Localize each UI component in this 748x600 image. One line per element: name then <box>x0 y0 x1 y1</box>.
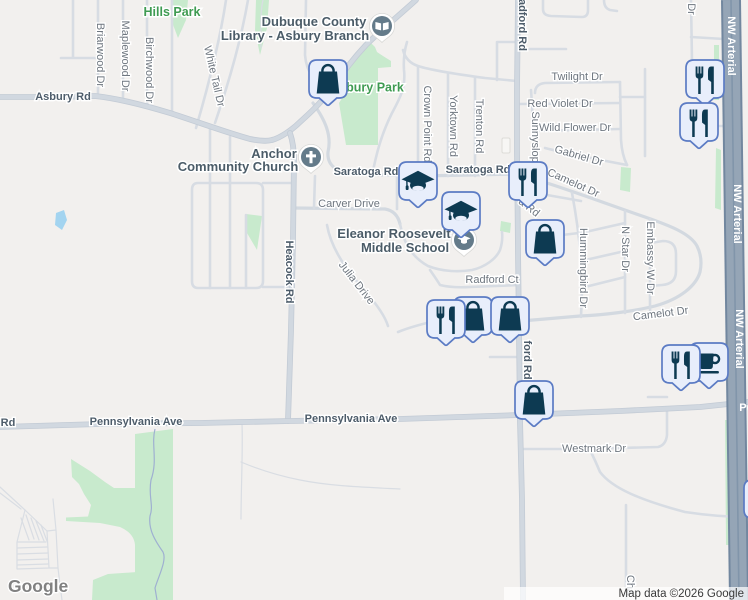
svg-text:Hills Park: Hills Park <box>144 5 201 19</box>
svg-text:Saratoga Rd: Saratoga Rd <box>334 166 399 178</box>
svg-text:Maplewood Dr: Maplewood Dr <box>119 21 131 92</box>
svg-text:NW Arterial: NW Arterial <box>731 184 743 244</box>
svg-text:Trenton Rd: Trenton Rd <box>473 99 485 154</box>
svg-text:Dr: Dr <box>685 3 697 15</box>
svg-text:Sunnyslop: Sunnyslop <box>529 111 541 162</box>
svg-text:NW Arterial: NW Arterial <box>733 309 745 369</box>
svg-text:Birchwood Dr: Birchwood Dr <box>143 37 155 103</box>
svg-text:Red Violet Dr: Red Violet Dr <box>527 98 593 110</box>
svg-text:Library - Asbury Branch: Library - Asbury Branch <box>221 28 369 43</box>
svg-text:N Star Dr: N Star Dr <box>619 226 631 272</box>
svg-text:Westmark Dr: Westmark Dr <box>562 443 626 455</box>
svg-text:Radford Rd: Radford Rd <box>516 0 528 51</box>
svg-text:Dubuque County: Dubuque County <box>262 14 367 29</box>
svg-text:Radford Ct: Radford Ct <box>465 274 518 286</box>
svg-text:Heacock Rd: Heacock Rd <box>283 241 295 304</box>
svg-text:Crown Point Rd: Crown Point Rd <box>421 85 433 162</box>
svg-text:Map data ©2026 Google: Map data ©2026 Google <box>619 588 744 600</box>
svg-text:Rd: Rd <box>1 417 16 429</box>
svg-text:Middle School: Middle School <box>361 240 449 255</box>
svg-text:Hummingbird Dr: Hummingbird Dr <box>577 228 589 308</box>
svg-text:Eleanor Roosevelt: Eleanor Roosevelt <box>337 226 451 241</box>
svg-text:Briarwood Dr: Briarwood Dr <box>94 23 106 88</box>
svg-text:Saratoga Rd: Saratoga Rd <box>446 164 511 176</box>
svg-text:Community Church: Community Church <box>178 159 299 174</box>
svg-text:Wild Flower Dr: Wild Flower Dr <box>539 122 611 134</box>
svg-text:ford Rd: ford Rd <box>521 340 533 379</box>
svg-text:Twilight Dr: Twilight Dr <box>551 71 603 83</box>
svg-text:Asbury Rd: Asbury Rd <box>35 91 91 103</box>
svg-text:Pe: Pe <box>739 402 748 414</box>
svg-text:Pennsylvania Ave: Pennsylvania Ave <box>305 413 398 425</box>
svg-text:NW Arterial: NW Arterial <box>725 16 737 76</box>
svg-text:Embassy W Dr: Embassy W Dr <box>644 221 656 295</box>
svg-text:Google: Google <box>8 576 69 596</box>
svg-text:Yorktown Rd: Yorktown Rd <box>447 95 459 157</box>
svg-text:Pennsylvania Ave: Pennsylvania Ave <box>90 416 183 428</box>
svg-text:Carver Drive: Carver Drive <box>318 198 380 210</box>
